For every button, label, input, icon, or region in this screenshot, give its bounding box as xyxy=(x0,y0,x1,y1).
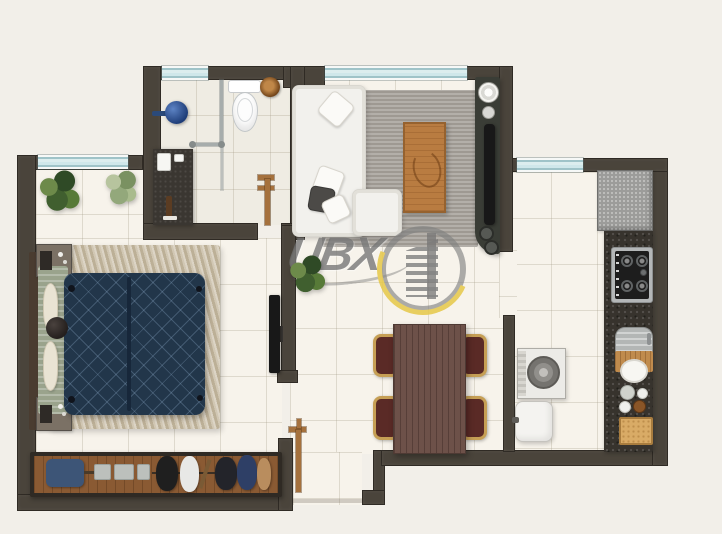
washer-hub xyxy=(539,368,548,377)
bed-pillow xyxy=(43,341,58,391)
sofa-chaise xyxy=(352,189,402,236)
wall-living-right xyxy=(499,66,513,252)
towel-ring xyxy=(260,77,280,97)
window-bathroom xyxy=(162,66,208,80)
floor-plan: UBX xyxy=(0,0,722,534)
wardrobe-folded-gray xyxy=(94,464,111,480)
living-room-tv xyxy=(484,124,495,225)
hanging-clothes-navy xyxy=(237,455,257,490)
kitchen-faucet xyxy=(647,333,651,345)
window-kitchen xyxy=(517,158,583,172)
glass-joint xyxy=(218,141,225,148)
burner-small xyxy=(640,269,647,276)
entrance-threshold xyxy=(293,499,362,503)
nightstand-decor xyxy=(63,260,67,264)
hall-plant-icon xyxy=(287,253,327,299)
shower-glass-return xyxy=(221,146,223,190)
hanging-clothes-white xyxy=(180,456,199,492)
dining-table xyxy=(393,324,466,454)
wooden-tray xyxy=(619,417,653,445)
dish xyxy=(620,385,635,400)
nightstand-drawer xyxy=(40,251,52,270)
bed-knit-cushion xyxy=(46,317,68,339)
bathroom-door-leaf xyxy=(265,179,270,225)
speaker-icon xyxy=(478,82,499,103)
speaker-icon xyxy=(479,226,494,241)
window-bedroom xyxy=(38,155,128,169)
wardrobe-folded-gray xyxy=(114,464,134,480)
wall-bathroom-bottom xyxy=(143,223,258,240)
kitchen-passage-floor xyxy=(499,250,517,318)
vanity-detail xyxy=(166,196,172,218)
tank-faucet xyxy=(512,417,519,423)
wardrobe-folded-blue xyxy=(46,459,84,487)
nightstand-decor xyxy=(58,252,63,257)
hanging-clothes-black xyxy=(156,456,178,491)
nightstand-decor xyxy=(58,404,63,409)
burner-icon xyxy=(621,255,633,267)
bedroom-tv xyxy=(269,295,280,373)
shower-head xyxy=(165,101,188,124)
burner-icon xyxy=(636,255,648,267)
duvet-knot xyxy=(197,395,203,401)
speaker-icon xyxy=(484,240,499,255)
wardrobe-folded-gray xyxy=(137,464,150,480)
dish xyxy=(637,388,648,399)
bedroom-plant-icon xyxy=(36,168,82,218)
shower-glass-vertical xyxy=(220,80,223,146)
vanity-soap-dish xyxy=(174,154,184,162)
wall-bedroom-hall xyxy=(281,225,296,383)
duvet-fold xyxy=(127,277,131,411)
wardrobe-rail xyxy=(84,471,94,474)
entrance-door-leaf xyxy=(296,430,301,492)
bedroom-tv-mount xyxy=(280,326,283,342)
duvet-knot xyxy=(196,286,202,292)
window-living-room xyxy=(325,66,467,80)
washer-towel xyxy=(518,351,526,396)
wall-dining-laundry-divider xyxy=(503,315,515,452)
glass-joint xyxy=(189,141,196,148)
cooktop-knobs xyxy=(616,254,619,296)
coffee-table xyxy=(403,122,446,213)
wall-entry-step-foot xyxy=(362,490,385,505)
dish xyxy=(619,401,631,413)
entrance-door-tick xyxy=(297,419,301,428)
speaker-small-icon xyxy=(482,106,495,119)
duvet-knot xyxy=(68,285,75,292)
nightstand-drawer xyxy=(40,405,52,423)
entry-floor xyxy=(293,452,362,505)
wall-bedroom-hall-cap xyxy=(277,370,298,383)
bed-duvet xyxy=(64,273,205,415)
wall-kitchen-right xyxy=(652,158,668,466)
burner-icon xyxy=(621,280,633,292)
nightstand-decor xyxy=(62,412,66,416)
vanity-sink xyxy=(157,153,171,171)
laundry-tank xyxy=(515,401,553,442)
bedroom-plant2-icon xyxy=(102,168,140,208)
burner-icon xyxy=(636,280,648,292)
fridge xyxy=(597,170,653,231)
bowl-brown xyxy=(633,400,646,413)
duvet-knot xyxy=(68,396,75,403)
kitchen-sink-basin xyxy=(620,359,648,383)
vanity-mat xyxy=(163,216,177,220)
hanging-clothes-tan xyxy=(257,458,271,490)
hanging-clothes-dark xyxy=(215,457,237,490)
